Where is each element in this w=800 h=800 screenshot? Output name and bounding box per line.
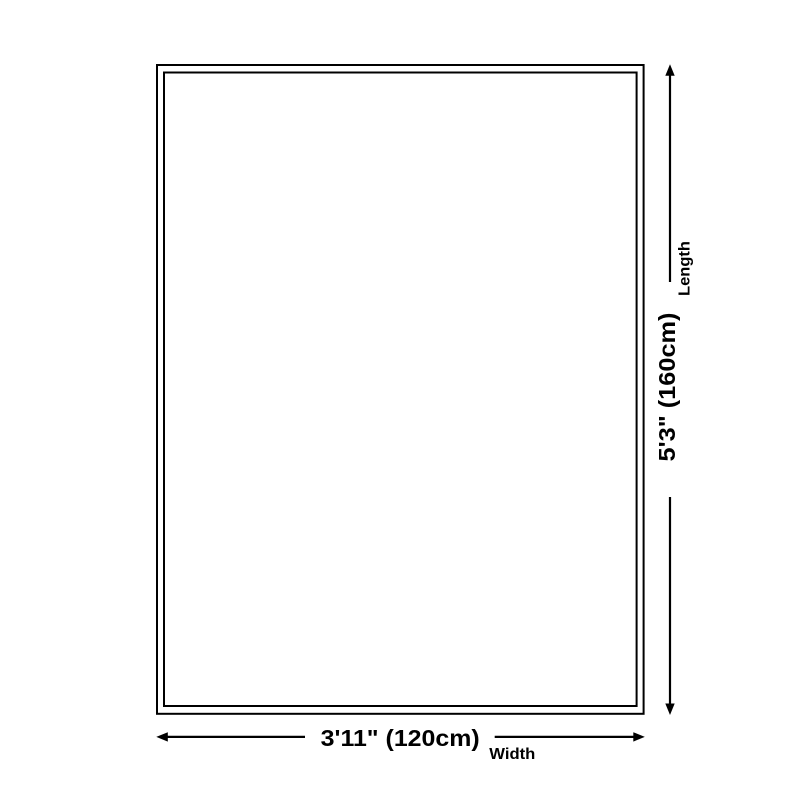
svg-text:3'11" (120cm): 3'11" (120cm) [321, 725, 480, 751]
svg-text:Length: Length [677, 241, 694, 296]
svg-text:5'3" (160cm): 5'3" (160cm) [654, 313, 680, 462]
svg-text:Width: Width [489, 746, 535, 763]
